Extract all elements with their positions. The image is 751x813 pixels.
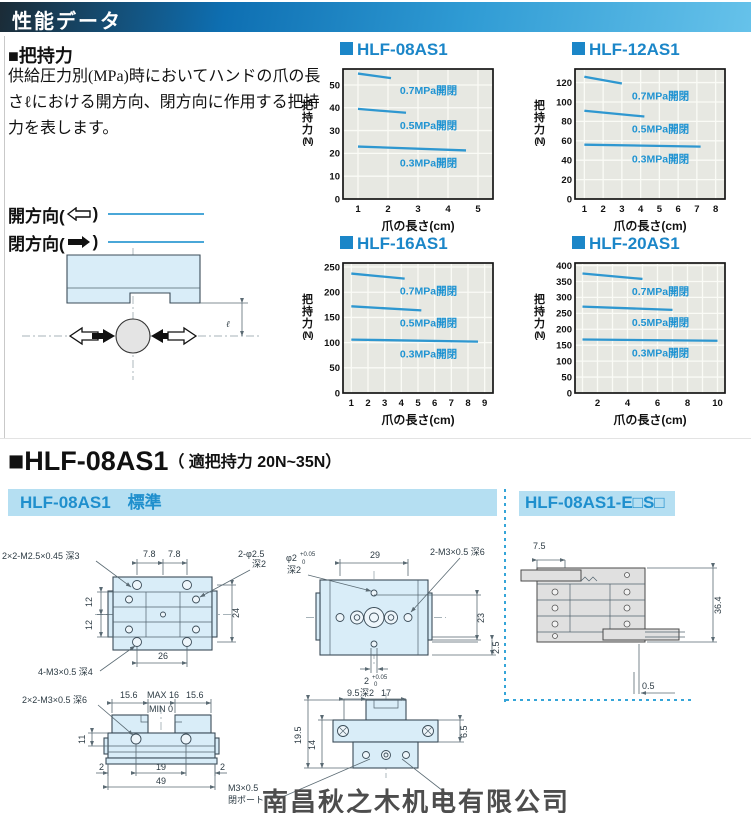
y-tick-label: 100 [556, 97, 572, 108]
dim-label: 2.5 [491, 641, 501, 654]
x-tick-label: 8 [685, 398, 690, 409]
chart-title-square-icon [572, 42, 585, 55]
y-axis-title: 把持力(N) [300, 101, 315, 147]
legend-open-label: 開方向( [8, 202, 65, 227]
y-tick-label: 0 [335, 388, 340, 399]
e-version-model-bar: HLF-08AS1-E□S□ [519, 491, 675, 516]
close-arrow-right-icon [92, 329, 115, 343]
y-axis-title: 把持力(N) [300, 295, 315, 341]
chart-title-square-icon [572, 236, 585, 249]
dim-label: 24 [231, 608, 241, 618]
y-tick-label: 60 [561, 136, 572, 147]
dim-label: 9.5 [347, 688, 360, 698]
dim-label: 2 [99, 762, 104, 772]
open-direction-arrow-icon [66, 207, 92, 221]
chart-plot: 0.7MPa開閉0.5MPa開閉0.3MPa開閉0204060801001201… [547, 61, 731, 233]
dim-label: 7.5 [533, 541, 546, 551]
series-label: 0.5MPa開閉 [632, 317, 689, 329]
dim-label: 7.8 [143, 549, 156, 559]
dim-label: MAX 16 [147, 690, 179, 700]
page-title: 性能データ [0, 2, 122, 34]
dim-label: 6.5 [459, 725, 469, 738]
chart-title: HLF-20AS1 [572, 234, 747, 254]
y-tick-label: 0 [335, 194, 340, 205]
chart-hlf-20as1: HLF-20AS1把持力(N)0.7MPa開閉0.5MPa開閉0.3MPa開閉0… [532, 234, 747, 427]
drawing-e-version-view: 7.5 36.4 0.5 [515, 522, 751, 705]
open-arrow-right-icon [168, 328, 196, 344]
dim-label: 36.4 [713, 596, 723, 614]
thread-spec-label: 4-M3×0.5 深4 [38, 667, 93, 677]
tolerance-label: 0 [302, 560, 306, 566]
chart-title-square-icon [340, 236, 353, 249]
x-tick-label: 4 [625, 398, 631, 409]
dim-label: 17 [381, 688, 391, 698]
series-label: 0.7MPa開閉 [400, 286, 457, 298]
dim-label: 19 [156, 762, 166, 772]
watermark-text: 南昌秋之木机电有限公司 [262, 782, 570, 813]
chart-hlf-16as1: HLF-16AS1把持力(N)0.7MPa開閉0.5MPa開閉0.3MPa開閉0… [300, 234, 515, 427]
x-tick-label: 4 [445, 204, 451, 215]
x-tick-label: 6 [675, 204, 680, 215]
y-tick-label: 100 [324, 338, 340, 349]
chart-title: HLF-16AS1 [340, 234, 515, 254]
y-tick-label: 0 [567, 194, 572, 205]
x-tick-label: 2 [595, 398, 600, 409]
x-axis-title: 爪の長さ(cm) [381, 218, 454, 233]
series-label: 0.7MPa開閉 [400, 85, 457, 97]
dim-label: 23 [476, 613, 486, 623]
y-tick-label: 250 [324, 262, 340, 273]
y-tick-label: 300 [556, 293, 572, 304]
x-tick-label: 3 [382, 398, 387, 409]
close-port-label: 閉ポート [228, 795, 264, 805]
x-tick-label: 8 [713, 204, 718, 215]
standard-model-bar: HLF-08AS1 標準 [8, 489, 497, 516]
y-tick-label: 150 [324, 313, 340, 324]
model-section-title: ■HLF-08AS1（ 適把持力 20N~35N） [8, 446, 341, 477]
x-tick-label: 5 [657, 204, 663, 215]
grip-force-description: 供給圧力別(MPa)時においてハンドの爪の長さℓにおける開方向、閉方向に作用する… [8, 64, 332, 142]
tolerance-label: +0.05 [372, 675, 388, 681]
x-tick-label: 2 [385, 204, 390, 215]
x-axis-title: 爪の長さ(cm) [613, 218, 686, 233]
y-tick-label: 10 [329, 171, 340, 182]
chart-hlf-12as1: HLF-12AS1把持力(N)0.7MPa開閉0.5MPa開閉0.3MPa開閉0… [532, 40, 747, 233]
x-tick-label: 7 [694, 204, 699, 215]
y-axis-title: 把持力(N) [532, 101, 547, 147]
hole-spec-label: φ2 [286, 553, 297, 563]
y-tick-label: 40 [329, 103, 340, 114]
y-tick-label: 100 [556, 356, 572, 367]
dim-label: MIN 0 [149, 704, 173, 714]
y-tick-label: 120 [556, 78, 572, 89]
x-tick-label: 1 [349, 398, 355, 409]
port-thread-label: M3×0.5 [228, 783, 258, 793]
dim-label: 12 [84, 620, 94, 630]
gripper-mechanism-diagram: ℓ [20, 248, 280, 433]
chart-plot: 0.7MPa開閉0.5MPa開閉0.3MPa開閉0102030405012345… [315, 61, 499, 233]
thread-spec-label: 2×2-M2.5×0.45 深3 [2, 551, 80, 561]
dim-label: 12 [84, 597, 94, 607]
dim-label: 0.5 [642, 681, 655, 691]
x-tick-label: 4 [399, 398, 405, 409]
x-tick-label: 6 [655, 398, 660, 409]
y-tick-label: 20 [329, 149, 340, 160]
chart-hlf-08as1: HLF-08AS1把持力(N)0.7MPa開閉0.5MPa開閉0.3MPa開閉0… [300, 40, 515, 233]
y-tick-label: 80 [561, 117, 572, 128]
y-axis-title: 把持力(N) [532, 295, 547, 341]
drawing-top-view: 7.8 7.8 2×2-M2.5×0.45 深3 2-φ2.5 深2 12 12… [0, 545, 310, 703]
legend-open-line [108, 213, 204, 215]
x-tick-label: 7 [449, 398, 454, 409]
legend-open-direction: 開方向( ) [8, 200, 204, 228]
hole-spec-label: 2-φ2.5 [238, 549, 264, 559]
series-label: 0.3MPa開閉 [400, 157, 457, 169]
y-tick-label: 0 [567, 388, 572, 399]
dim-label: 26 [158, 651, 168, 661]
chart-plot: 0.7MPa開閉0.5MPa開閉0.3MPa開閉0501001502002503… [547, 255, 731, 427]
page-header-banner: 性能データ [0, 2, 751, 32]
y-tick-label: 200 [324, 288, 340, 299]
y-tick-label: 50 [329, 80, 340, 91]
dim-label: 7.8 [168, 549, 181, 559]
y-tick-label: 150 [556, 341, 572, 352]
tolerance-label: +0.05 [300, 552, 316, 558]
y-tick-label: 20 [561, 175, 572, 186]
y-tick-label: 350 [556, 277, 572, 288]
chart-title-square-icon [340, 42, 353, 55]
dim-label: 15.6 [120, 690, 138, 700]
y-tick-label: 250 [556, 309, 572, 320]
series-label: 0.3MPa開閉 [632, 154, 689, 166]
chart-plot: 0.7MPa開閉0.5MPa開閉0.3MPa開閉0501001502002501… [315, 255, 499, 427]
y-tick-label: 30 [329, 126, 340, 137]
dim-label: 29 [370, 550, 380, 560]
x-tick-label: 3 [415, 204, 420, 215]
x-axis-title: 爪の長さ(cm) [381, 412, 454, 427]
dim-label: 19.5 [293, 726, 303, 744]
hole-depth-label: 深2 [252, 559, 266, 569]
x-tick-label: 8 [465, 398, 470, 409]
y-tick-label: 40 [561, 155, 572, 166]
x-tick-label: 3 [619, 204, 624, 215]
thread-spec-label: 2×2-M3×0.5 深6 [22, 695, 87, 705]
x-tick-label: 2 [600, 204, 605, 215]
series-label: 0.5MPa開閉 [400, 317, 457, 329]
x-tick-label: 5 [475, 204, 481, 215]
left-border-line [4, 36, 5, 438]
y-tick-label: 50 [329, 363, 340, 374]
grip-range-subtitle: （ 適把持力 20N~35N） [168, 454, 341, 471]
catalog-page: 性能データ ■把持力 供給圧力別(MPa)時においてハンドの爪の長さℓにおける開… [0, 0, 751, 813]
x-tick-label: 2 [365, 398, 370, 409]
series-label: 0.7MPa開閉 [632, 91, 689, 103]
hole-depth-label: 深2 [287, 565, 301, 575]
dim-label: 15.6 [186, 690, 204, 700]
chart-title: HLF-08AS1 [340, 40, 515, 60]
dim-label: 11 [77, 735, 87, 744]
dim-label: 2 [364, 676, 369, 686]
thread-spec-label: 2-M3×0.5 深6 [430, 547, 485, 557]
series-label: 0.7MPa開閉 [632, 286, 689, 298]
x-tick-label: 4 [638, 204, 644, 215]
section-separator-line [0, 438, 751, 439]
close-direction-arrow-icon [66, 235, 92, 249]
legend-close-line [108, 241, 204, 243]
dim-label: 14 [307, 740, 317, 750]
series-label: 0.5MPa開閉 [632, 124, 689, 136]
x-tick-label: 9 [482, 398, 487, 409]
claw-length-symbol: ℓ [226, 319, 230, 329]
x-tick-label: 1 [355, 204, 361, 215]
dim-label: 49 [156, 776, 166, 786]
series-label: 0.3MPa開閉 [400, 349, 457, 361]
series-label: 0.5MPa開閉 [400, 120, 457, 132]
y-tick-label: 400 [556, 261, 572, 272]
x-axis-title: 爪の長さ(cm) [613, 412, 686, 427]
y-tick-label: 50 [561, 372, 572, 383]
chart-title: HLF-12AS1 [572, 40, 747, 60]
x-tick-label: 6 [432, 398, 437, 409]
y-tick-label: 200 [556, 325, 572, 336]
x-tick-label: 1 [582, 204, 588, 215]
series-label: 0.3MPa開閉 [632, 348, 689, 360]
x-tick-label: 10 [712, 398, 723, 409]
x-tick-label: 5 [415, 398, 421, 409]
drawing-plan-view: 29 φ2 +0.05 0 深2 2-M3×0.5 深6 23 2.5 2 +0… [278, 545, 508, 705]
